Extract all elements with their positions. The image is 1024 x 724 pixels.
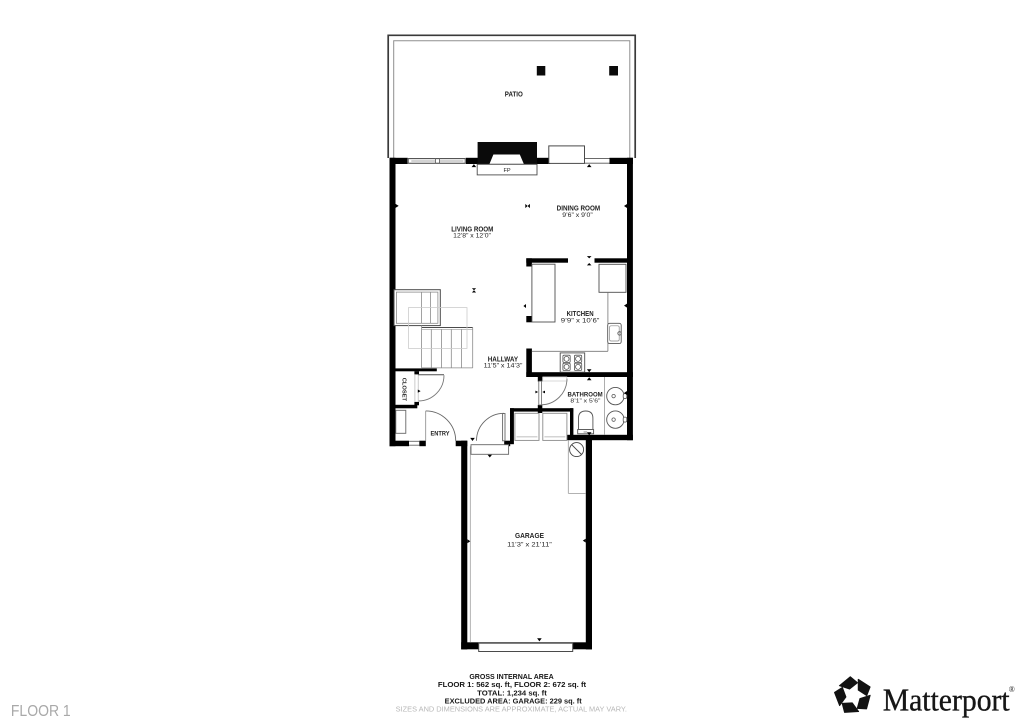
svg-text:Matterport: Matterport <box>883 682 1010 718</box>
svg-text:FLOOR 1: 562 sq. ft, FLOOR 2:: FLOOR 1: 562 sq. ft, FLOOR 2: 672 sq. ft <box>438 680 587 689</box>
svg-text:BATHROOM: BATHROOM <box>568 393 603 399</box>
svg-text:9’6” x 9’0”: 9’6” x 9’0” <box>562 212 592 219</box>
svg-text:GARAGE: GARAGE <box>515 531 544 540</box>
svg-text:11’5” x 14’3”: 11’5” x 14’3” <box>484 363 523 370</box>
svg-text:FP: FP <box>504 168 511 174</box>
svg-text:9’9” x 10’6”: 9’9” x 10’6” <box>561 318 600 325</box>
svg-text:SIZES AND DIMENSIONS ARE APPRO: SIZES AND DIMENSIONS ARE APPROXIMATE, AC… <box>396 705 627 714</box>
svg-text:CLOSET: CLOSET <box>400 378 406 402</box>
svg-text:12’8” x 12’0”: 12’8” x 12’0” <box>453 233 491 240</box>
svg-text:FLOOR 1: FLOOR 1 <box>11 703 71 720</box>
svg-text:ENTRY: ENTRY <box>430 432 449 438</box>
svg-text:PATIO: PATIO <box>505 89 523 98</box>
svg-text:11’3” x 21’11”: 11’3” x 21’11” <box>507 541 552 548</box>
svg-text:®: ® <box>1009 685 1015 694</box>
svg-text:8’1” x 5’6”: 8’1” x 5’6” <box>570 399 600 405</box>
